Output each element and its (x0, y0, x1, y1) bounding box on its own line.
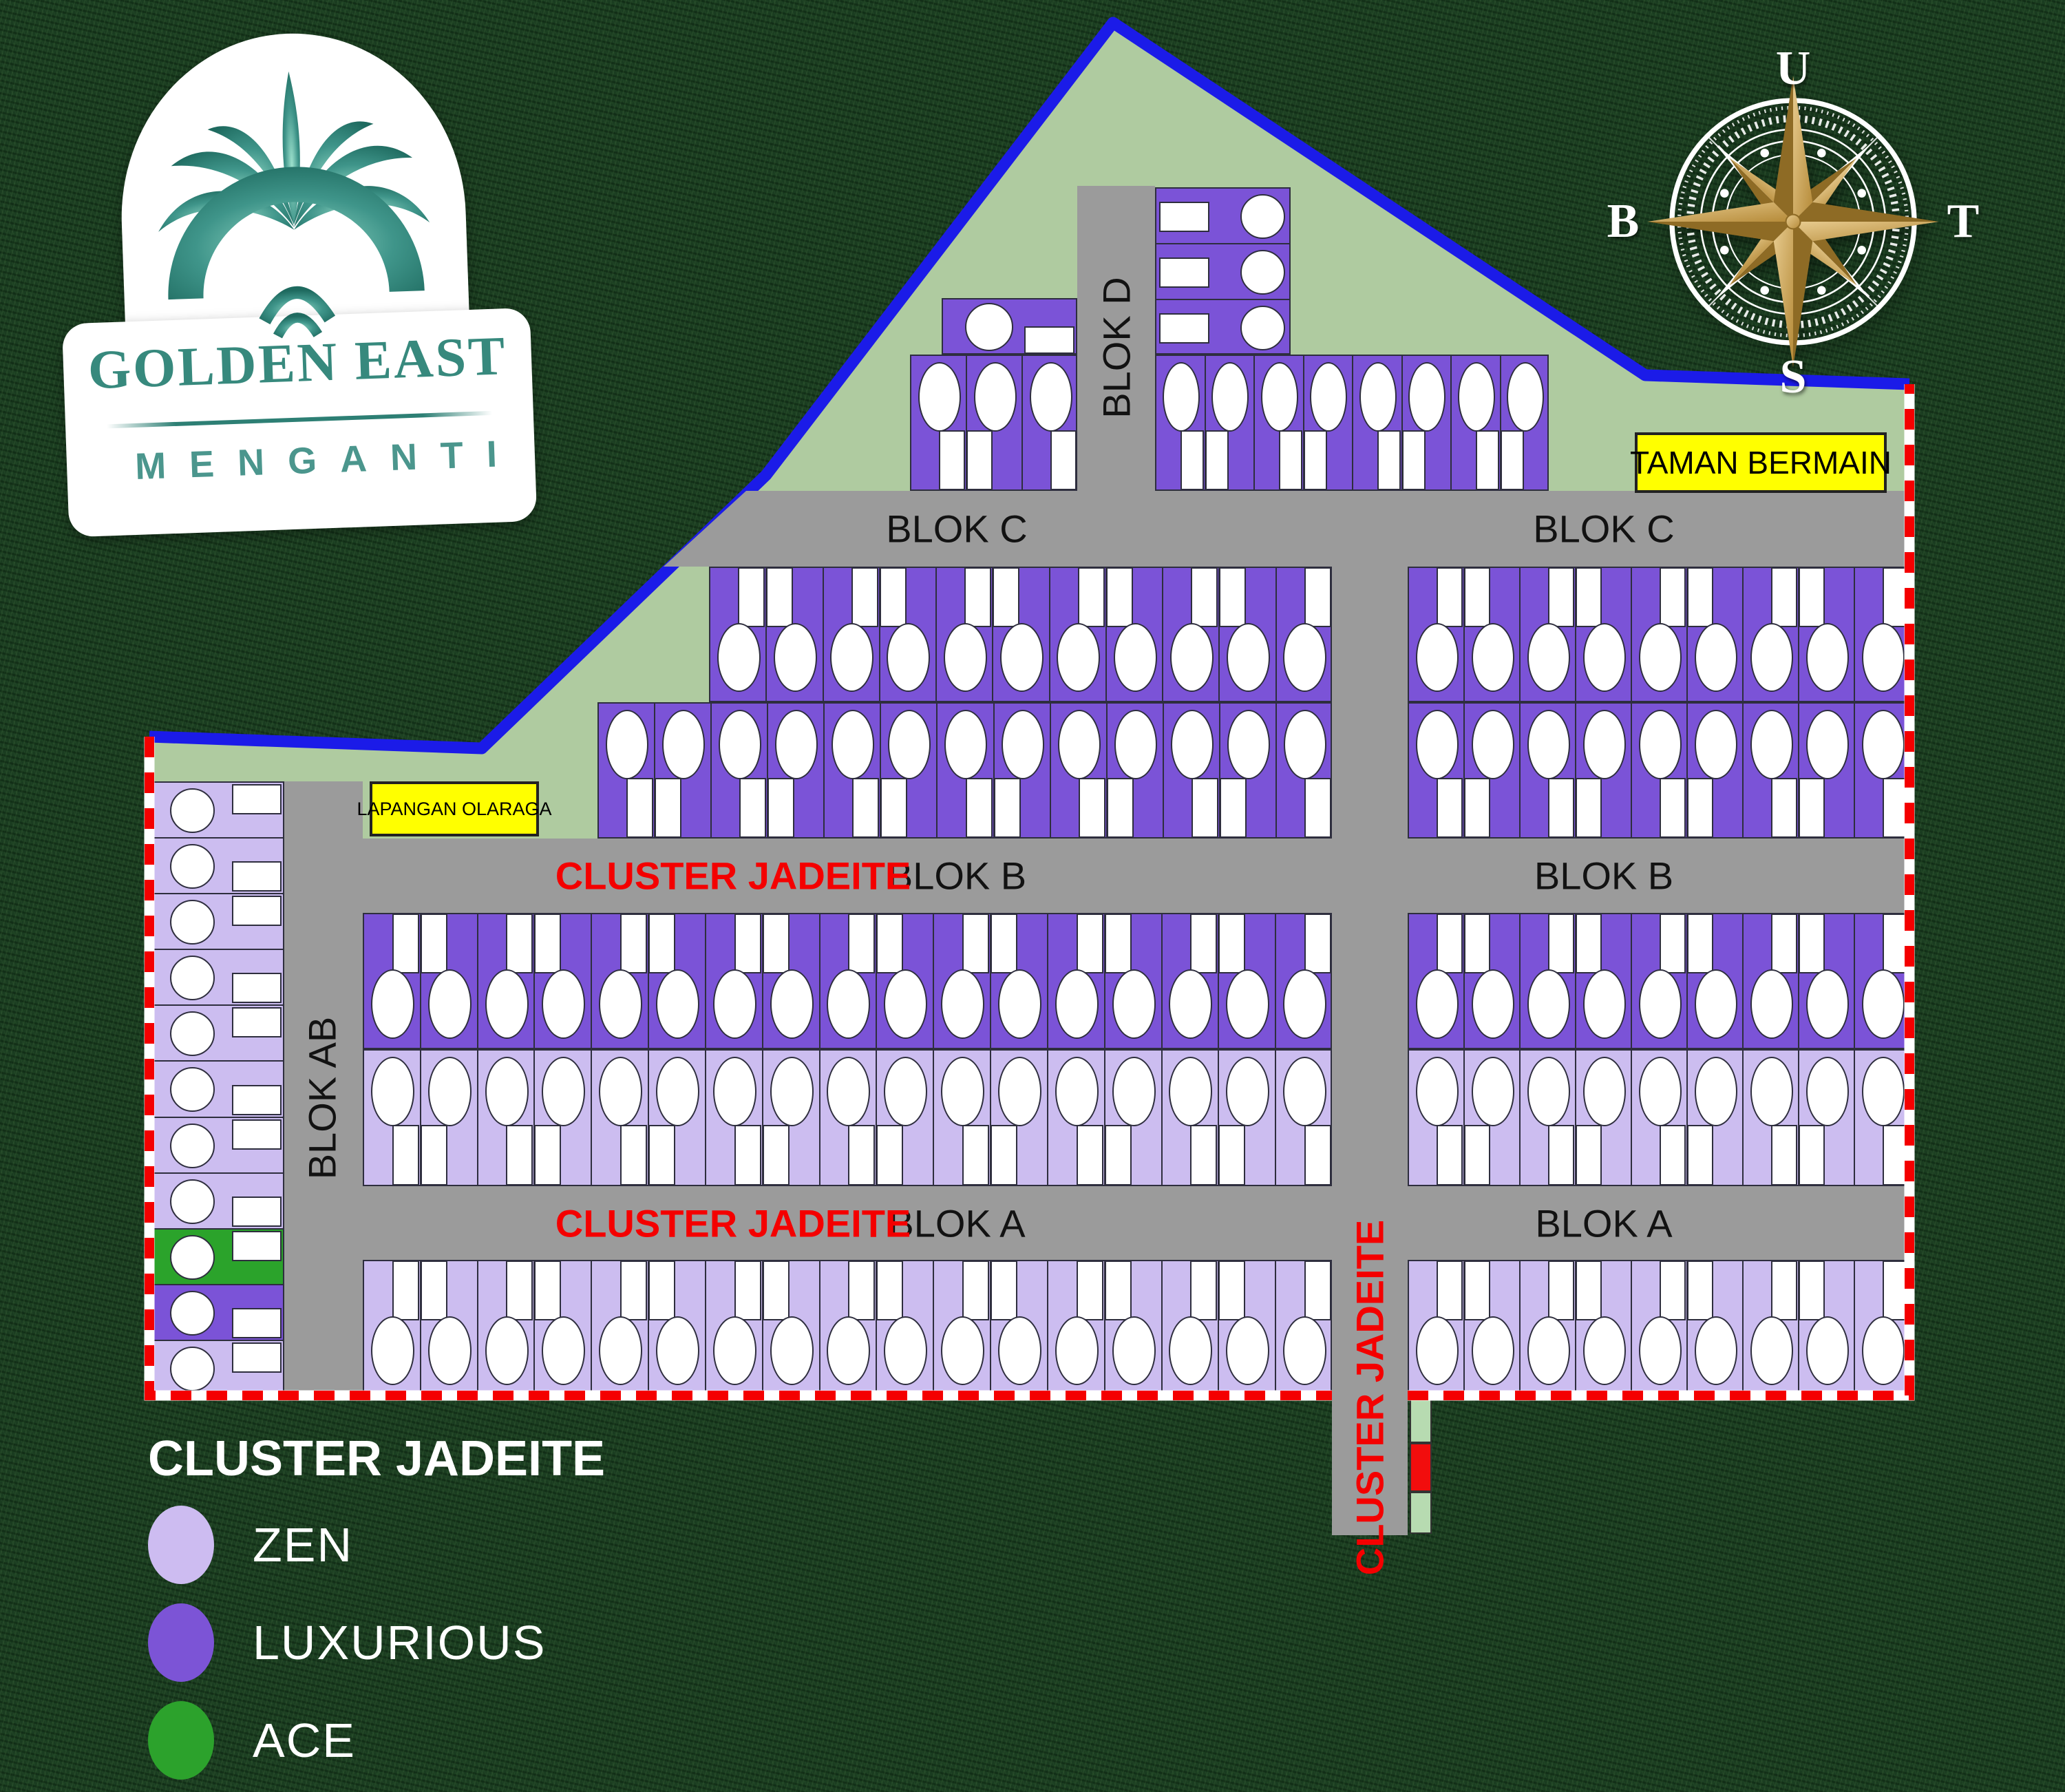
house-unit-below-a-left (876, 1260, 934, 1395)
house-porch-circle (1750, 623, 1793, 692)
house-door (1660, 914, 1686, 973)
house-door (392, 1261, 419, 1320)
house-unit-cb-right-2 (1408, 702, 1465, 839)
house-door (421, 914, 447, 973)
house-unit-west-d-row (966, 355, 1023, 491)
house-unit-cb-left-1 (1218, 567, 1276, 702)
house-door (534, 1261, 561, 1320)
house-porch-circle (1862, 710, 1905, 779)
house-porch-circle (1169, 1057, 1212, 1126)
house-porch-circle (1527, 710, 1570, 779)
house-unit-ba-right-lux (1463, 913, 1521, 1049)
house-door (1576, 1261, 1602, 1320)
house-porch-circle (1055, 1316, 1099, 1385)
house-porch-circle (1170, 623, 1214, 692)
house-door (1377, 430, 1401, 490)
house-unit-cb-right-1 (1463, 567, 1521, 702)
house-unit-cb-left-1 (1049, 567, 1107, 702)
house-door (1304, 778, 1331, 838)
house-unit-cb-right-1 (1798, 567, 1855, 702)
house-door (1660, 1125, 1686, 1185)
ace-color-swatch (148, 1701, 214, 1780)
legend-label-ace: ACE (253, 1713, 356, 1768)
compass-label-north: U (1776, 41, 1811, 96)
house-porch-circle (1240, 306, 1285, 350)
house-unit-below-a-right (1686, 1260, 1744, 1395)
house-door (1501, 430, 1524, 490)
house-door (964, 567, 991, 627)
house-unit-west-col (150, 1004, 284, 1062)
house-porch-circle (941, 969, 984, 1039)
house-porch-circle (884, 969, 927, 1039)
legend: CLUSTER JADEITE ZEN LUXURIOUS ACE (148, 1431, 605, 1780)
house-porch-circle (1639, 710, 1682, 779)
house-unit-below-a-right (1408, 1260, 1465, 1395)
house-garage (232, 784, 282, 814)
house-unit-below-a-left (819, 1260, 878, 1395)
house-unit-cb-left-2 (1163, 702, 1220, 839)
house-unit-cb-left-2 (1050, 702, 1108, 839)
house-door (534, 1125, 561, 1185)
house-unit-ba-right-lux (1854, 913, 1909, 1049)
house-porch-circle (1639, 623, 1682, 692)
house-door (1079, 778, 1105, 838)
house-door (1105, 914, 1132, 973)
house-door (1576, 914, 1602, 973)
house-porch-circle (1227, 710, 1270, 779)
house-door (1304, 1261, 1331, 1320)
house-unit-west-col (150, 1172, 284, 1230)
house-unit-ba-left-lux (1275, 913, 1332, 1049)
house-door (1304, 430, 1327, 490)
house-porch-circle (1695, 623, 1737, 692)
house-porch-circle (713, 969, 756, 1039)
house-unit-above-c-row (1401, 355, 1452, 491)
house-door (620, 1261, 647, 1320)
house-porch-circle (1472, 623, 1514, 692)
house-unit-below-a-right (1575, 1260, 1632, 1395)
house-door (1771, 778, 1797, 838)
house-porch-circle (713, 1057, 756, 1126)
house-porch-circle (1169, 969, 1212, 1039)
house-porch-circle (485, 1057, 529, 1126)
house-unit-below-a-left (477, 1260, 536, 1395)
house-unit-ba-left-zen (819, 1049, 878, 1186)
house-unit-above-c-row (1155, 355, 1206, 491)
house-unit-ba-left-zen (933, 1049, 991, 1186)
house-porch-circle (1283, 623, 1326, 692)
legend-item-zen: ZEN (148, 1505, 605, 1585)
house-porch-circle (717, 623, 761, 692)
house-door (1437, 778, 1463, 838)
house-door (991, 1261, 1017, 1320)
house-unit-ba-left-zen (533, 1049, 592, 1186)
house-unit-ba-right-zen (1631, 1049, 1688, 1186)
house-porch-circle (170, 1124, 215, 1168)
house-door (852, 778, 879, 838)
house-porch-circle (887, 623, 930, 692)
house-unit-cb-left-2 (1219, 702, 1277, 839)
house-porch-circle (599, 1316, 642, 1385)
house-door (994, 778, 1021, 838)
house-unit-ba-right-lux (1742, 913, 1799, 1049)
house-unit-ba-left-zen (1218, 1049, 1276, 1186)
house-garage (1024, 326, 1074, 353)
house-porch-circle (832, 710, 874, 779)
legend-item-ace: ACE (148, 1700, 605, 1780)
house-unit-ba-right-lux (1686, 913, 1744, 1049)
house-porch-circle (656, 969, 699, 1039)
house-door (1180, 430, 1204, 490)
house-porch-circle (1458, 362, 1495, 432)
house-door (966, 778, 993, 838)
road-label: BLOK C (886, 507, 1027, 551)
house-door (626, 778, 653, 838)
house-unit-cb-right-2 (1575, 702, 1632, 839)
house-unit-cb-left-2 (993, 702, 1051, 839)
house-unit-ba-left-lux (477, 913, 536, 1049)
house-unit-ba-right-zen (1686, 1049, 1744, 1186)
house-porch-circle (1750, 1057, 1793, 1126)
house-unit-below-a-left (648, 1260, 706, 1395)
house-porch-circle (1055, 1057, 1099, 1126)
house-porch-circle (1583, 710, 1626, 779)
area-label-lapangan-olaraga: LAPANGAN OLARAGA (370, 781, 539, 836)
house-door (1799, 1125, 1825, 1185)
stub-lot-cell (1410, 1492, 1432, 1534)
house-garage (232, 1308, 282, 1338)
house-garage (1159, 313, 1209, 344)
house-door (1660, 1261, 1686, 1320)
house-porch-circle (1240, 250, 1285, 295)
house-door (1190, 1125, 1217, 1185)
compass-label-east: T (1947, 194, 1980, 249)
house-unit-ba-left-zen (762, 1049, 820, 1186)
house-porch-circle (888, 710, 931, 779)
house-porch-circle (1283, 969, 1326, 1039)
house-door (1077, 1125, 1103, 1185)
house-unit-ba-left-lux (1047, 913, 1105, 1049)
house-door (1883, 567, 1909, 627)
house-unit-cb-left-1 (823, 567, 880, 702)
house-porch-circle (1112, 1316, 1156, 1385)
house-porch-circle (884, 1057, 927, 1126)
road-label: BLOK AB (300, 1017, 345, 1180)
house-unit-ba-left-lux (1218, 913, 1276, 1049)
house-unit-west-col (150, 1228, 284, 1285)
area-label-taman-bermain: TAMAN BERMAIN (1635, 432, 1887, 493)
house-unit-below-a-left (420, 1260, 478, 1395)
house-unit-ba-right-zen (1408, 1049, 1465, 1186)
house-door (648, 914, 675, 973)
house-porch-circle (599, 969, 642, 1039)
house-door (767, 778, 794, 838)
house-unit-below-a-left (933, 1260, 991, 1395)
compass-label-west: B (1607, 194, 1640, 249)
house-unit-above-c-row (1253, 355, 1304, 491)
house-door (1548, 1125, 1574, 1185)
house-door (738, 567, 765, 627)
house-door (993, 567, 1019, 627)
house-unit-below-a-left (1047, 1260, 1105, 1395)
house-door (1548, 567, 1574, 627)
house-door (1464, 567, 1490, 627)
house-door (1105, 1261, 1132, 1320)
house-door (648, 1125, 675, 1185)
house-door (1687, 914, 1713, 973)
house-porch-circle (1806, 710, 1849, 779)
house-door (1771, 567, 1797, 627)
house-door (1799, 567, 1825, 627)
luxurious-color-swatch (148, 1603, 214, 1682)
house-porch-circle (1507, 362, 1544, 432)
house-porch-circle (1416, 623, 1459, 692)
house-unit-ba-right-lux (1798, 913, 1855, 1049)
house-porch-circle (1527, 1316, 1570, 1385)
house-door (1576, 567, 1602, 627)
house-porch-circle (1240, 194, 1285, 239)
house-door (506, 1125, 533, 1185)
house-porch-circle (1750, 1316, 1793, 1385)
house-unit-cb-left-2 (936, 702, 994, 839)
house-unit-cb-left-2 (880, 702, 938, 839)
house-door (421, 1261, 447, 1320)
house-porch-circle (1000, 623, 1044, 692)
house-unit-cb-right-1 (1408, 567, 1465, 702)
house-unit-below-a-right (1631, 1260, 1688, 1395)
house-porch-circle (656, 1316, 699, 1385)
house-door (991, 1125, 1017, 1185)
house-porch-circle (599, 1057, 642, 1126)
house-door (739, 778, 766, 838)
house-door (506, 914, 533, 973)
house-porch-circle (1527, 623, 1570, 692)
house-porch-circle (371, 1316, 414, 1385)
cluster-name-label: CLUSTER JADEITE (555, 1201, 911, 1246)
house-porch-circle (1058, 710, 1101, 779)
house-porch-circle (542, 1057, 585, 1126)
house-unit-ba-left-lux (876, 913, 934, 1049)
house-unit-west-col (150, 837, 284, 894)
house-porch-circle (1416, 969, 1459, 1039)
house-porch-circle (918, 362, 961, 432)
house-porch-circle (1639, 969, 1682, 1039)
house-porch-circle (428, 1057, 472, 1126)
house-unit-west-col (150, 1340, 284, 1395)
house-door (1106, 567, 1133, 627)
legend-title: CLUSTER JADEITE (148, 1431, 605, 1487)
house-unit-ba-left-zen (1161, 1049, 1220, 1186)
house-door (876, 914, 903, 973)
house-unit-cb-right-2 (1742, 702, 1799, 839)
house-garage (1159, 257, 1209, 288)
house-door (1548, 914, 1574, 973)
house-door (1464, 1125, 1490, 1185)
house-unit-below-a-left (1218, 1260, 1276, 1395)
house-porch-circle (1862, 623, 1905, 692)
house-porch-circle (770, 1316, 814, 1385)
house-porch-circle (1171, 710, 1214, 779)
house-unit-west-col (150, 781, 284, 839)
house-porch-circle (1750, 710, 1793, 779)
house-door (1437, 567, 1463, 627)
house-porch-circle (1057, 623, 1100, 692)
house-unit-below-a-left (762, 1260, 820, 1395)
house-door (1437, 1261, 1463, 1320)
house-unit-west-col (150, 949, 284, 1006)
house-garage (232, 1231, 282, 1261)
house-door (1304, 1125, 1331, 1185)
house-door (1437, 1125, 1463, 1185)
house-porch-circle (884, 1316, 927, 1385)
house-unit-below-a-right (1854, 1260, 1909, 1395)
house-porch-circle (170, 900, 215, 945)
house-unit-above-c-row (1352, 355, 1403, 491)
house-door (1078, 567, 1105, 627)
house-door (392, 1125, 419, 1185)
house-unit-west-col (150, 1060, 284, 1117)
stub-lot-cell (1410, 1443, 1432, 1492)
house-porch-circle (542, 969, 585, 1039)
house-porch-circle (428, 1316, 472, 1385)
house-door (1304, 914, 1331, 973)
house-unit-below-a-right (1519, 1260, 1576, 1395)
house-porch-circle (170, 788, 215, 833)
house-door (880, 778, 907, 838)
house-unit-cb-right-1 (1575, 567, 1632, 702)
house-porch-circle (1695, 1316, 1737, 1385)
house-door (962, 1125, 989, 1185)
house-unit-cb-left-1 (1162, 567, 1220, 702)
house-unit-west-col (150, 1284, 284, 1341)
house-unit-cb-left-1 (709, 567, 767, 702)
house-unit-east-d-col (1155, 187, 1291, 244)
house-porch-circle (941, 1316, 984, 1385)
house-door (421, 1125, 447, 1185)
house-porch-circle (170, 1347, 215, 1391)
legend-label-luxurious: LUXURIOUS (253, 1615, 546, 1670)
house-unit-ba-right-lux (1519, 913, 1576, 1049)
house-unit-ba-left-lux (990, 913, 1048, 1049)
house-unit-below-a-left (1104, 1260, 1163, 1395)
house-porch-circle (1114, 623, 1157, 692)
house-porch-circle (998, 969, 1041, 1039)
house-unit-ba-left-zen (648, 1049, 706, 1186)
house-unit-ba-left-lux (420, 913, 478, 1049)
house-porch-circle (1284, 710, 1326, 779)
house-door (962, 914, 989, 973)
house-unit-below-a-right (1798, 1260, 1855, 1395)
house-porch-circle (656, 1057, 699, 1126)
house-porch-circle (662, 710, 705, 779)
house-unit-below-a-left (705, 1260, 763, 1395)
house-door (966, 430, 993, 490)
house-porch-circle (775, 710, 818, 779)
house-porch-circle (1030, 362, 1072, 432)
house-porch-circle (1806, 969, 1849, 1039)
house-door (1077, 1261, 1103, 1320)
house-door (1105, 1125, 1132, 1185)
house-door (763, 1261, 790, 1320)
house-door (1464, 778, 1490, 838)
house-door (1191, 567, 1218, 627)
house-garage (1159, 202, 1209, 232)
house-porch-circle (371, 969, 414, 1039)
house-porch-circle (1310, 362, 1347, 432)
house-unit-ba-left-zen (1275, 1049, 1332, 1186)
house-porch-circle (770, 969, 814, 1039)
house-door (1576, 1125, 1602, 1185)
house-door (1219, 567, 1246, 627)
house-unit-cb-right-1 (1519, 567, 1576, 702)
house-porch-circle (1002, 710, 1044, 779)
house-door (851, 567, 878, 627)
house-unit-ba-left-zen (990, 1049, 1048, 1186)
house-unit-cb-right-2 (1854, 702, 1909, 839)
house-porch-circle (1583, 969, 1626, 1039)
house-porch-circle (1227, 623, 1270, 692)
house-unit-cb-right-1 (1742, 567, 1799, 702)
house-door (1190, 914, 1217, 973)
palm-tree-icon (135, 43, 450, 343)
house-unit-west-d-row (1021, 355, 1077, 491)
road-blok-c (619, 491, 1909, 567)
house-door (1548, 778, 1574, 838)
house-unit-below-a-left (363, 1260, 421, 1395)
house-unit-cb-left-1 (1105, 567, 1163, 702)
legend-item-luxurious: LUXURIOUS (148, 1603, 605, 1683)
house-door (1687, 778, 1713, 838)
house-porch-circle (1226, 1057, 1269, 1126)
house-porch-circle (1695, 1057, 1737, 1126)
house-porch-circle (1112, 1057, 1156, 1126)
house-door (1050, 430, 1077, 490)
house-unit-ba-left-lux (1104, 913, 1163, 1049)
house-unit-below-a-left (1275, 1260, 1332, 1395)
house-unit-cb-left-2 (710, 702, 768, 839)
house-porch-circle (1750, 969, 1793, 1039)
house-unit-west-d-single (942, 298, 1077, 355)
house-door (763, 914, 790, 973)
house-unit-ba-left-zen (420, 1049, 478, 1186)
house-porch-circle (170, 844, 215, 889)
house-door (1205, 430, 1229, 490)
house-unit-cb-left-1 (879, 567, 937, 702)
house-unit-below-a-right (1742, 1260, 1799, 1395)
house-garage (232, 973, 282, 1003)
house-door (848, 914, 875, 973)
house-unit-west-d-row (910, 355, 967, 491)
road-label: BLOK B (1534, 854, 1673, 898)
house-door (1576, 778, 1602, 838)
house-porch-circle (1583, 1057, 1626, 1126)
house-door (620, 914, 647, 973)
stub-lot-cell (1410, 1398, 1432, 1443)
house-porch-circle (1639, 1057, 1682, 1126)
house-porch-circle (1806, 1316, 1849, 1385)
house-porch-circle (774, 623, 817, 692)
house-door (1771, 1125, 1797, 1185)
house-garage (232, 1007, 282, 1037)
house-door (1799, 914, 1825, 973)
house-unit-cb-right-1 (1631, 567, 1688, 702)
house-unit-ba-left-lux (762, 913, 820, 1049)
house-unit-cb-left-2 (823, 702, 881, 839)
house-unit-cb-right-2 (1463, 702, 1521, 839)
house-unit-ba-left-lux (533, 913, 592, 1049)
house-door (1687, 1125, 1713, 1185)
house-unit-cb-left-1 (765, 567, 823, 702)
